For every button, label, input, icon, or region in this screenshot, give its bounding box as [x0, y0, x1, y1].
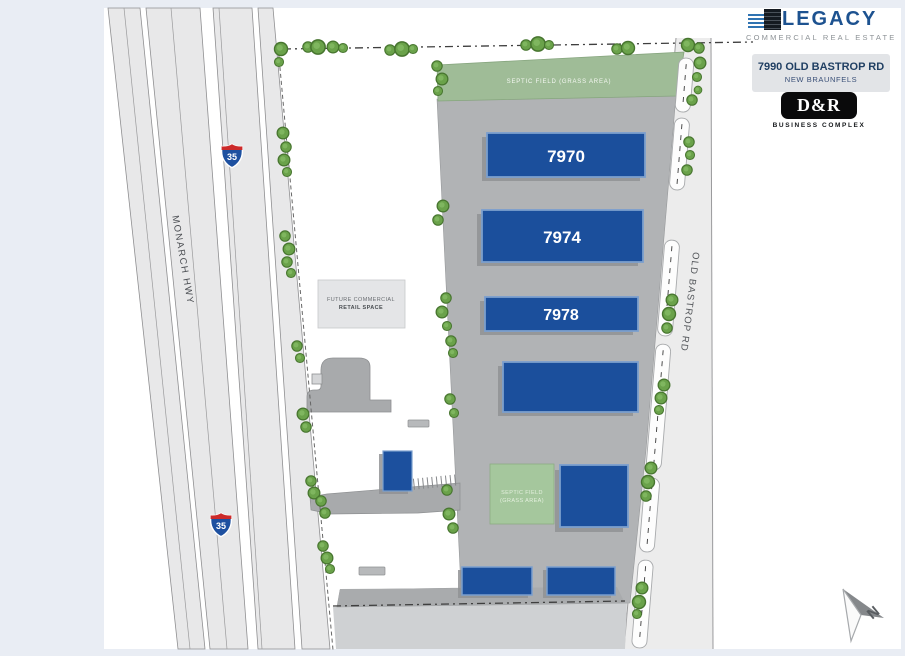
svg-text:(GRASS AREA): (GRASS AREA): [500, 498, 544, 504]
address-card: 7990 OLD BASTROP RD NEW BRAUNFELS: [752, 54, 890, 92]
tree-icon: [316, 496, 326, 506]
tree-icon: [662, 323, 672, 333]
tree-icon: [531, 37, 545, 51]
septic-field-square: SEPTIC FIELD (GRASS AREA): [490, 464, 554, 524]
tree-icon: [612, 44, 622, 54]
tree-icon: [448, 348, 457, 357]
building-7978: 7978: [480, 297, 638, 335]
tree-icon: [645, 462, 657, 474]
tree-icon: [441, 293, 451, 303]
tree-icon: [295, 353, 304, 362]
building-unlabeled-7: [543, 567, 615, 598]
tree-icon: [318, 541, 328, 551]
tree-icon: [282, 167, 291, 176]
svg-text:SEPTIC FIELD (GRASS AREA): SEPTIC FIELD (GRASS AREA): [507, 79, 612, 85]
building-7974: 7974: [477, 210, 643, 266]
building-small-8: [379, 451, 412, 494]
tree-icon: [448, 523, 458, 533]
tree-icon: [658, 379, 670, 391]
svg-text:FUTURE COMMERCIAL: FUTURE COMMERCIAL: [327, 297, 395, 303]
tree-icon: [297, 408, 309, 420]
site-plan-page: MONARCH HWY 35 35 SEPTIC FIELD (GRASS AR…: [0, 0, 905, 656]
tree-icon: [521, 40, 531, 50]
tree-icon: [280, 231, 290, 241]
tree-icon: [432, 61, 442, 71]
tree-icon: [311, 40, 325, 54]
future-retail-pad: FUTURE COMMERCIAL RETAIL SPACE: [318, 280, 405, 328]
tree-icon: [633, 596, 646, 609]
svg-text:SEPTIC FIELD: SEPTIC FIELD: [501, 490, 543, 496]
building-7970: 7970: [482, 133, 645, 181]
tree-icon: [687, 95, 697, 105]
svg-text:RETAIL SPACE: RETAIL SPACE: [339, 305, 383, 311]
tree-icon: [301, 422, 311, 432]
building-unlabeled-5: [555, 465, 628, 532]
tree-icon: [641, 491, 651, 501]
dr-logo-name: D&R: [797, 95, 841, 116]
tree-icon: [277, 127, 289, 139]
tree-icon: [292, 341, 302, 351]
tree-icon: [685, 150, 694, 159]
tree-icon: [682, 165, 692, 175]
tree-icon: [320, 508, 330, 518]
tree-icon: [636, 582, 648, 594]
tree-icon: [443, 508, 455, 520]
tree-icon: [655, 392, 667, 404]
tree-icon: [445, 394, 455, 404]
tree-icon: [282, 257, 292, 267]
tree-icon: [692, 72, 701, 81]
tree-icon: [449, 408, 458, 417]
tree-icon: [321, 552, 333, 564]
tree-icon: [437, 200, 449, 212]
tree-icon: [327, 41, 339, 53]
address-line2: NEW BRAUNFELS: [752, 75, 890, 84]
tree-icon: [385, 45, 395, 55]
svg-text:7970: 7970: [547, 147, 585, 166]
tree-icon: [544, 40, 553, 49]
legacy-logo-tagline: COMMERCIAL REAL ESTATE: [746, 33, 898, 42]
svg-text:7974: 7974: [543, 228, 581, 247]
tree-icon: [338, 43, 347, 52]
tree-icon: [275, 43, 288, 56]
tree-icon: [694, 43, 704, 53]
tree-icon: [395, 42, 409, 56]
tree-icon: [442, 321, 451, 330]
tree-icon: [694, 57, 706, 69]
legacy-logo: LEGACY COMMERCIAL REAL ESTATE: [746, 8, 898, 42]
tree-icon: [654, 405, 663, 414]
building-unlabeled-6: [458, 567, 532, 598]
tree-icon: [694, 86, 702, 94]
tree-icon: [436, 306, 448, 318]
tree-icon: [325, 564, 334, 573]
tree-icon: [283, 243, 295, 255]
tree-icon: [436, 73, 448, 85]
legacy-logo-icon: [746, 8, 782, 31]
tree-icon: [274, 57, 283, 66]
south-parcel-area: [333, 602, 627, 649]
building-unlabeled-4: [498, 362, 638, 416]
tree-icon: [306, 476, 316, 486]
tree-icon: [446, 336, 456, 346]
tree-icon: [632, 609, 641, 618]
legacy-logo-name: LEGACY: [782, 8, 877, 30]
tree-icon: [663, 308, 676, 321]
svg-text:7978: 7978: [543, 307, 579, 324]
tree-icon: [433, 215, 443, 225]
tree-icon: [682, 39, 695, 52]
tree-icon: [286, 268, 295, 277]
svg-text:35: 35: [227, 152, 237, 162]
tree-icon: [408, 44, 417, 53]
svg-text:35: 35: [216, 521, 226, 531]
tree-icon: [278, 154, 290, 166]
site-plan-image[interactable]: MONARCH HWY 35 35 SEPTIC FIELD (GRASS AR…: [0, 0, 905, 656]
tree-icon: [281, 142, 291, 152]
dr-logo-tagline: BUSINESS COMPLEX: [771, 122, 867, 129]
dr-logo: D&R: [781, 92, 857, 119]
tree-icon: [642, 476, 655, 489]
tree-icon: [622, 42, 635, 55]
tree-icon: [442, 485, 452, 495]
tree-icon: [666, 294, 678, 306]
tree-icon: [684, 137, 694, 147]
address-line1: 7990 OLD BASTROP RD: [752, 61, 890, 73]
tree-icon: [433, 86, 442, 95]
